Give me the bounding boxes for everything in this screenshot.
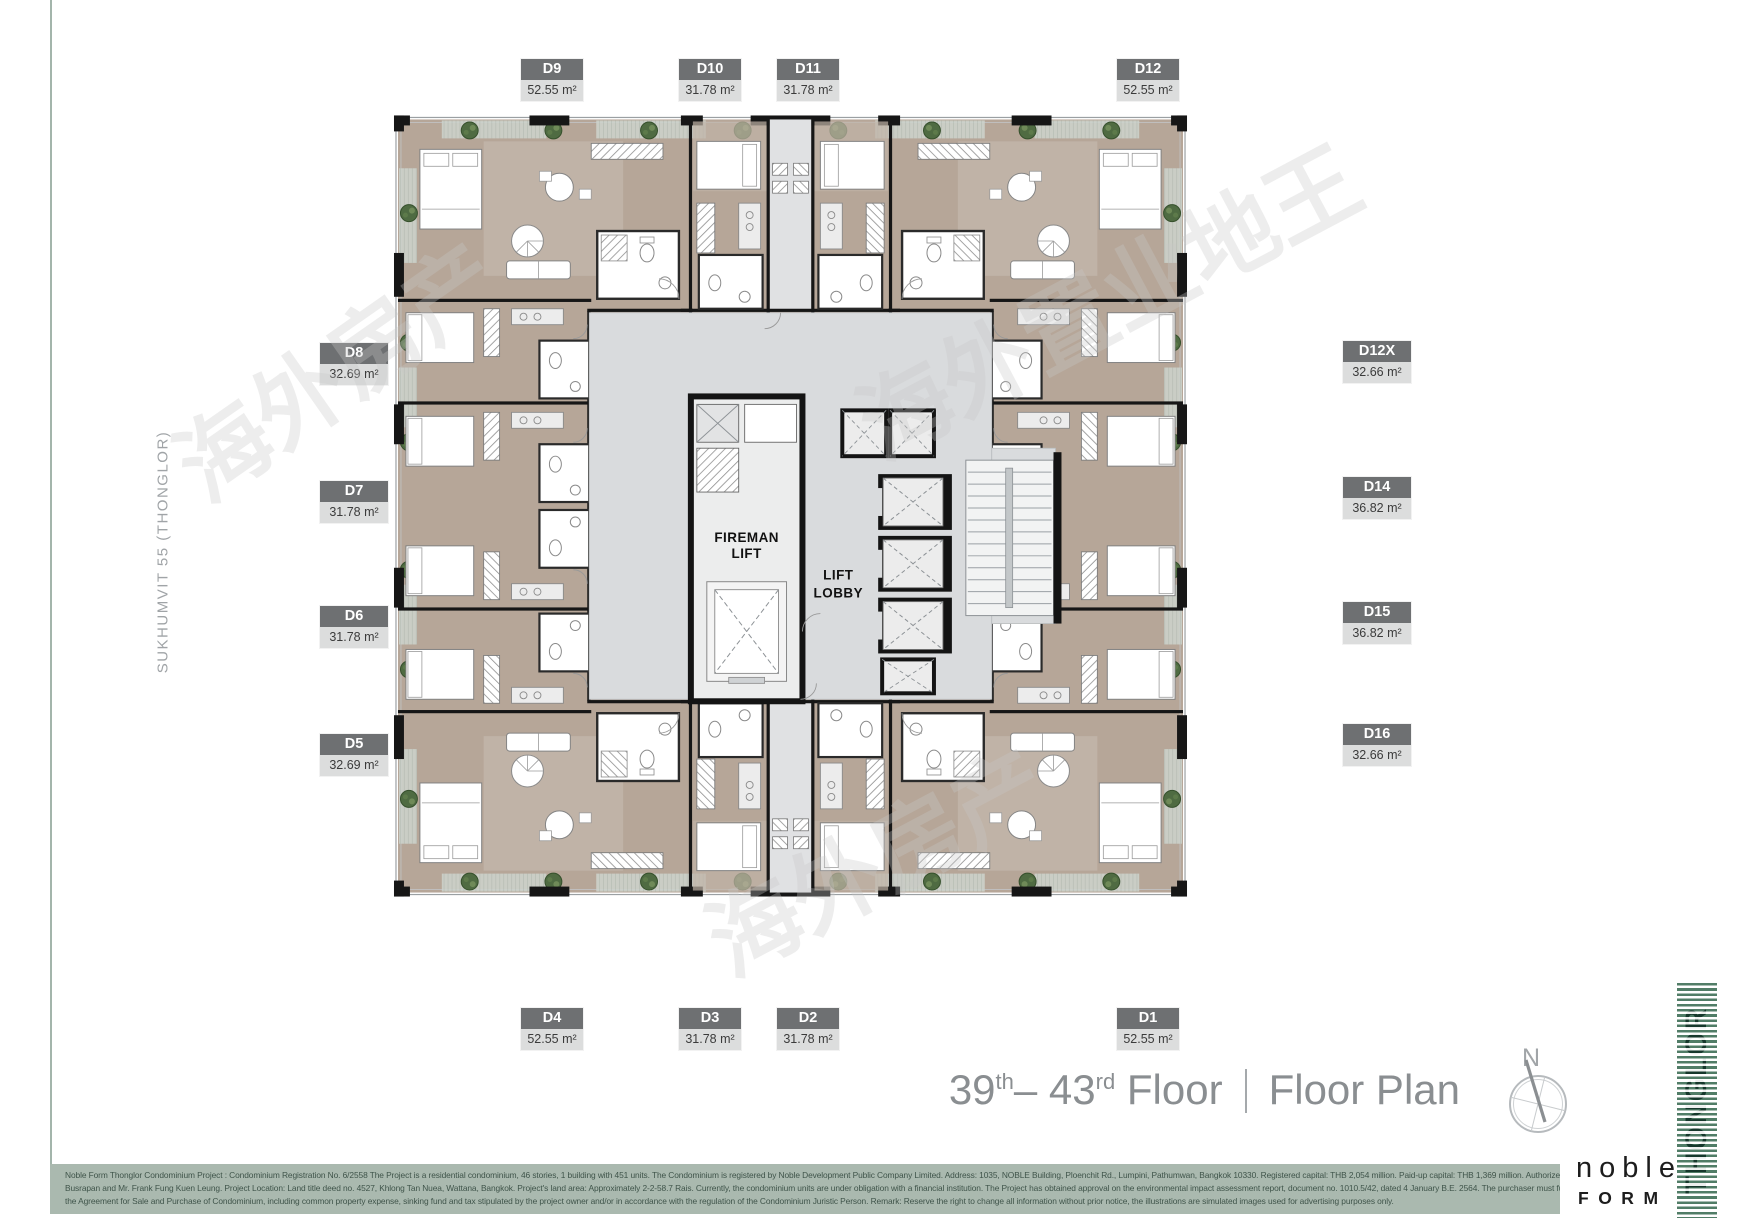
title-floor-to-suffix: rd <box>1096 1069 1116 1094</box>
unit-area: 36.82 m² <box>1343 623 1411 644</box>
unit-id: D12 <box>1117 59 1179 80</box>
core-area: FIREMAN LIFT <box>589 313 1061 702</box>
fireman-lift-room: FIREMAN LIFT <box>691 396 803 701</box>
unit-area: 31.78 m² <box>320 627 388 648</box>
unit-id: D12X <box>1343 341 1411 362</box>
unit-id: D11 <box>777 59 839 80</box>
title-floor-from-suffix: th <box>996 1069 1014 1094</box>
lift-lobby-label-line1: LIFT <box>823 568 854 583</box>
unit-label-d3: D3 31.78 m² <box>679 1008 741 1050</box>
unit-area: 36.82 m² <box>1343 498 1411 519</box>
title-floor-word: Floor <box>1115 1066 1222 1113</box>
unit-label-d4: D4 52.55 m² <box>521 1008 583 1050</box>
brand-thonglor-banner: THONGLOR <box>1677 983 1717 1218</box>
unit-area: 31.78 m² <box>320 502 388 523</box>
unit-area: 31.78 m² <box>679 80 741 101</box>
staircase <box>966 452 1062 623</box>
left-page-rule <box>50 0 52 1164</box>
title-plan-word: Floor Plan <box>1269 1066 1460 1113</box>
unit-area: 52.55 m² <box>1117 1029 1179 1050</box>
unit-label-d12: D12 52.55 m² <box>1117 59 1179 101</box>
street-label: SUKHUMVIT 55 (THONGLOR) <box>155 431 172 674</box>
banner-stripes-overlay <box>1677 983 1717 1218</box>
unit-id: D16 <box>1343 724 1411 745</box>
unit-label-d7: D7 31.78 m² <box>320 481 388 523</box>
unit-label-d14: D14 36.82 m² <box>1343 477 1411 519</box>
unit-id: D4 <box>521 1008 583 1029</box>
unit-id: D10 <box>679 59 741 80</box>
unit-id: D3 <box>679 1008 741 1029</box>
title-floor-from: 39 <box>949 1066 996 1113</box>
unit-area: 32.66 m² <box>1343 745 1411 766</box>
title-divider <box>1245 1069 1247 1113</box>
unit-area: 31.78 m² <box>679 1029 741 1050</box>
unit-area: 32.69 m² <box>320 364 388 385</box>
page-title: 39th– 43rd FloorFloor Plan <box>900 1066 1460 1114</box>
disclaimer-bar: Noble Form Thonglor Condominium Project … <box>50 1164 1560 1214</box>
brand-noble: noble <box>1576 1152 1682 1185</box>
unit-id: D8 <box>320 343 388 364</box>
unit-area: 32.69 m² <box>320 755 388 776</box>
unit-id: D15 <box>1343 602 1411 623</box>
unit-id: D7 <box>320 481 388 502</box>
unit-label-d5: D5 32.69 m² <box>320 734 388 776</box>
compass-icon: N <box>1482 1036 1597 1151</box>
brand-form: FORM <box>1578 1188 1668 1209</box>
unit-label-d6: D6 31.78 m² <box>320 606 388 648</box>
unit-id: D2 <box>777 1008 839 1029</box>
unit-area: 52.55 m² <box>521 80 583 101</box>
fireman-lift-label-line1: FIREMAN <box>714 530 779 545</box>
fireman-lift-label-line2: LIFT <box>731 546 762 561</box>
unit-id: D9 <box>521 59 583 80</box>
unit-id: D6 <box>320 606 388 627</box>
unit-area: 52.55 m² <box>1117 80 1179 101</box>
unit-area: 31.78 m² <box>777 1029 839 1050</box>
floor-plan-drawing: FIREMAN LIFT <box>392 112 1189 900</box>
unit-label-d9: D9 52.55 m² <box>521 59 583 101</box>
disclaimer-line-2: Busrapan and Mr. Frank Fung Kuen Leung. … <box>65 1182 1560 1195</box>
disclaimer-line-3: the Agreement for Sale and Purchase of C… <box>65 1195 1560 1208</box>
compass-north-label: N <box>1522 1044 1540 1072</box>
unit-area: 32.66 m² <box>1343 362 1411 383</box>
title-floor-to: – 43 <box>1014 1066 1096 1113</box>
unit-area: 52.55 m² <box>521 1029 583 1050</box>
unit-label-d1: D1 52.55 m² <box>1117 1008 1179 1050</box>
lift-lobby-label-line2: LOBBY <box>814 586 864 601</box>
unit-label-d2: D2 31.78 m² <box>777 1008 839 1050</box>
unit-label-d11: D11 31.78 m² <box>777 59 839 101</box>
unit-id: D14 <box>1343 477 1411 498</box>
unit-label-d16: D16 32.66 m² <box>1343 724 1411 766</box>
disclaimer-line-1: Noble Form Thonglor Condominium Project … <box>65 1169 1560 1182</box>
unit-label-d10: D10 31.78 m² <box>679 59 741 101</box>
unit-label-d15: D15 36.82 m² <box>1343 602 1411 644</box>
floor-plan-page: SUKHUMVIT 55 (THONGLOR) <box>0 0 1739 1229</box>
unit-label-d8: D8 32.69 m² <box>320 343 388 385</box>
unit-id: D5 <box>320 734 388 755</box>
unit-area: 31.78 m² <box>777 80 839 101</box>
unit-id: D1 <box>1117 1008 1179 1029</box>
unit-label-d12x: D12X 32.66 m² <box>1343 341 1411 383</box>
